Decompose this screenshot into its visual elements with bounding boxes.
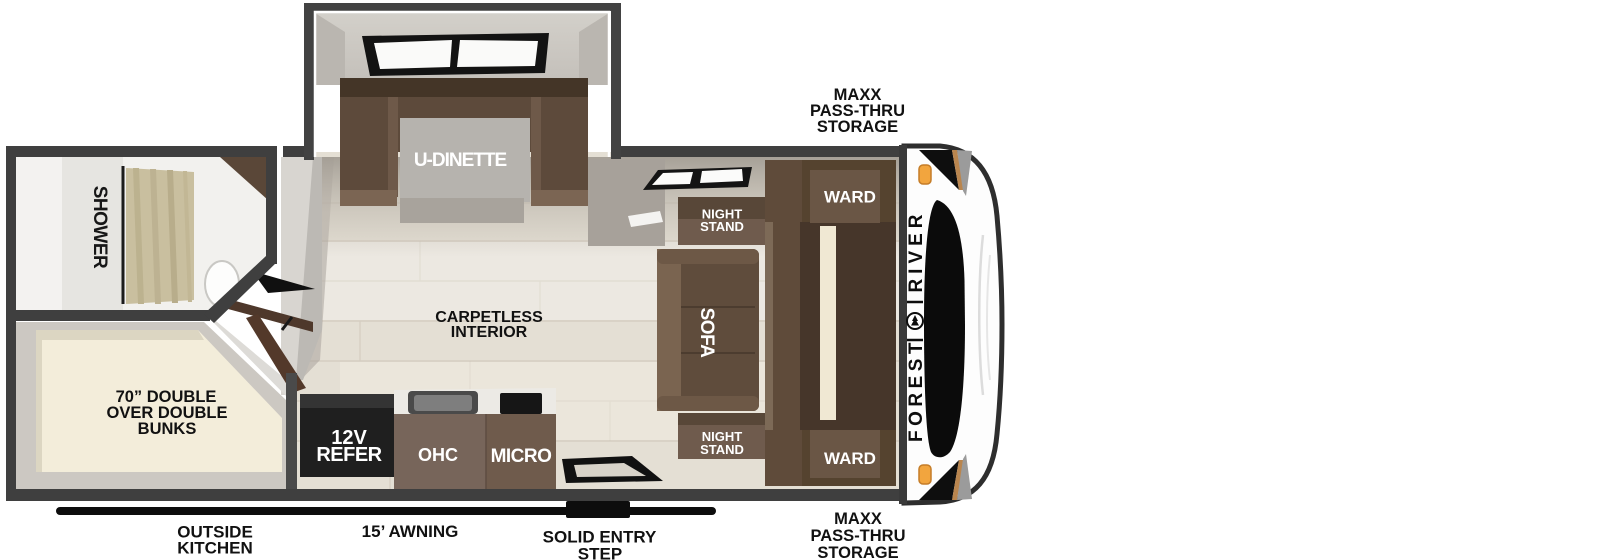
svg-text:STORAGE: STORAGE (817, 544, 898, 560)
svg-text:U-DINETTE: U-DINETTE (414, 150, 507, 171)
svg-text:WARD: WARD (824, 449, 876, 468)
svg-text:MAXX: MAXX (834, 510, 882, 528)
svg-text:WARD: WARD (824, 188, 876, 207)
svg-text:MICRO: MICRO (491, 446, 552, 467)
svg-text:15’ AWNING: 15’ AWNING (362, 522, 459, 541)
svg-text:STORAGE: STORAGE (817, 118, 898, 136)
svg-text:FOREST: FOREST (906, 338, 927, 442)
svg-text:REFER: REFER (316, 444, 382, 466)
svg-text:STAND: STAND (700, 219, 744, 234)
svg-text:SOFA: SOFA (696, 308, 717, 359)
svg-text:INTERIOR: INTERIOR (451, 324, 528, 341)
svg-text:PASS-THRU: PASS-THRU (810, 527, 905, 545)
svg-text:STEP: STEP (578, 545, 622, 560)
svg-text:BUNKS: BUNKS (138, 420, 197, 438)
svg-text:SHOWER: SHOWER (89, 186, 110, 269)
svg-text:RIVER: RIVER (906, 209, 927, 292)
svg-text:KITCHEN: KITCHEN (177, 539, 253, 558)
svg-text:STAND: STAND (700, 442, 744, 457)
svg-text:OHC: OHC (418, 445, 458, 465)
